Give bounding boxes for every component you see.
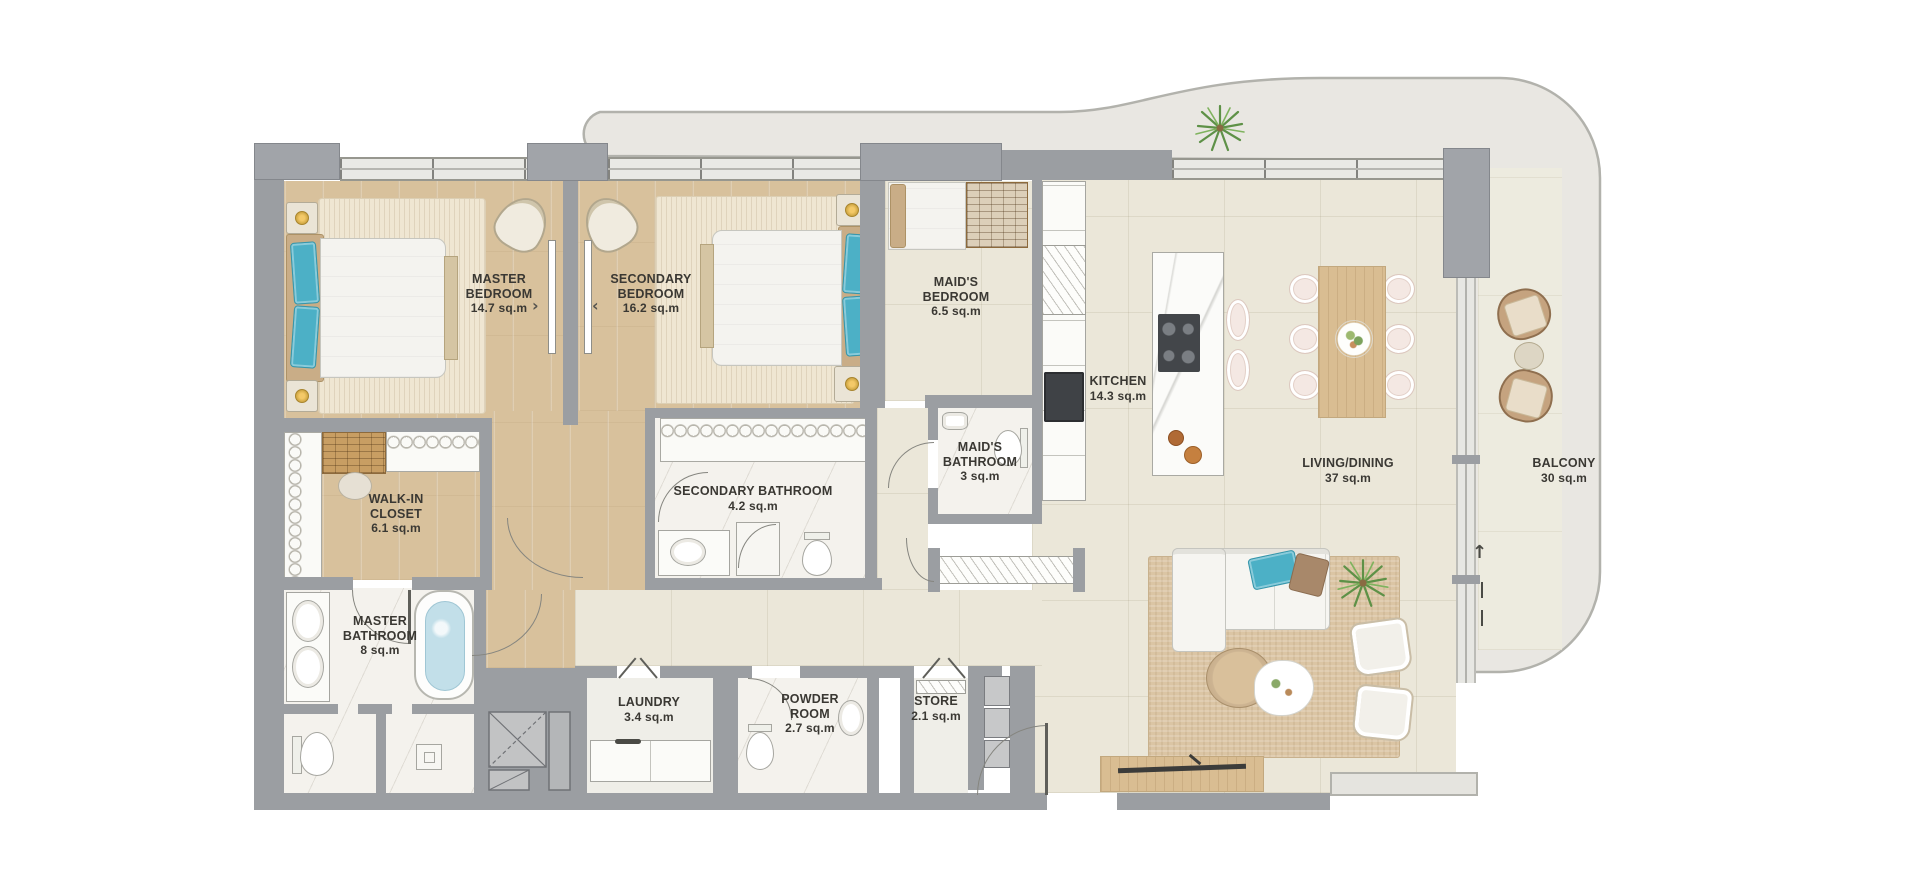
wall — [860, 180, 885, 408]
nightstand — [286, 202, 318, 234]
dining-chair — [1289, 324, 1321, 354]
column — [860, 143, 1002, 181]
sliding-door-arrow-icon: ‹ — [592, 298, 599, 314]
wall — [254, 793, 1047, 810]
bed-bench — [444, 256, 458, 360]
room-label-store: STORE 2.1 sq.m — [911, 694, 961, 723]
room-name: BALCONY — [1532, 456, 1595, 471]
room-area: 30 sq.m — [1532, 471, 1595, 486]
wall — [376, 714, 386, 793]
cooktop — [1158, 314, 1200, 372]
room-name: MASTER — [466, 272, 533, 287]
sliding-door-arrow-icon: › — [532, 298, 539, 314]
room-label-maids-bathroom: MAID'S BATHROOM 3 sq.m — [943, 440, 1017, 484]
column — [527, 143, 608, 181]
wall — [867, 666, 879, 793]
service-shaft — [984, 708, 1010, 738]
balcony-sill-band — [1330, 772, 1478, 796]
wall — [645, 408, 877, 418]
room-area: 4.2 sq.m — [674, 499, 833, 514]
lounge-armchair — [1351, 683, 1414, 743]
bar-stool — [1226, 299, 1250, 341]
room-name: BEDROOM — [923, 290, 990, 305]
room-label-master-bedroom: MASTER BEDROOM 14.7 sq.m — [466, 272, 533, 316]
service-shaft — [984, 676, 1010, 706]
room-name: CLOSET — [369, 507, 424, 522]
room-name: KITCHEN — [1090, 374, 1147, 389]
wall — [928, 408, 938, 440]
wall — [358, 704, 392, 714]
room-name: SECONDARY BATHROOM — [674, 484, 833, 499]
wall — [800, 666, 912, 678]
shower-drain — [416, 744, 442, 770]
kitchen-tall-cabinet — [1042, 245, 1086, 315]
sliding-door-track — [1456, 278, 1476, 683]
tv-console — [1100, 756, 1264, 792]
room-label-balcony: BALCONY 30 sq.m — [1532, 456, 1595, 485]
wall — [1032, 180, 1042, 524]
kitchen-back-counter — [938, 556, 1075, 584]
sink — [838, 700, 864, 736]
room-label-kitchen: KITCHEN 14.3 sq.m — [1090, 374, 1147, 403]
wardrobe-hangers — [284, 432, 322, 578]
wall — [1073, 548, 1085, 592]
room-name: MAID'S — [923, 275, 990, 290]
floor-plan: › ‹ — [0, 0, 1920, 892]
sliding-wardrobe-rail — [548, 240, 556, 354]
laundry-faucet — [615, 739, 641, 744]
toilet-tank — [804, 532, 830, 540]
room-name: BATHROOM — [343, 629, 417, 644]
wall — [254, 180, 284, 810]
lamp-icon — [295, 211, 309, 225]
room-label-secondary-bathroom: SECONDARY BATHROOM 4.2 sq.m — [674, 484, 833, 513]
room-name: POWDER — [781, 692, 838, 707]
dimension-dash — [1481, 582, 1483, 598]
secondary-bed — [712, 230, 842, 366]
washer-dryer — [590, 740, 711, 782]
room-name: BATHROOM — [943, 455, 1017, 470]
room-area: 6.5 sq.m — [923, 304, 990, 319]
wall — [928, 514, 1032, 524]
room-name: LIVING/DINING — [1302, 456, 1394, 471]
dimension-dash — [1481, 610, 1483, 626]
maids-bed-pillow — [890, 184, 906, 248]
room-label-powder-room: POWDER ROOM 2.7 sq.m — [781, 692, 838, 736]
sink — [942, 412, 968, 430]
shelf-unit — [322, 432, 386, 474]
sliding-wardrobe-rail — [584, 240, 592, 354]
pouf — [338, 472, 372, 500]
lamp-icon — [845, 377, 859, 391]
room-area: 8 sq.m — [343, 643, 417, 658]
wall — [900, 666, 914, 793]
bar-stool — [1226, 349, 1250, 391]
bed-bench — [700, 244, 714, 348]
room-name: LAUNDRY — [618, 695, 680, 710]
room-area: 3 sq.m — [943, 469, 1017, 484]
room-name: MASTER — [343, 614, 417, 629]
decor-bottle — [1184, 446, 1202, 464]
dining-chair — [1383, 324, 1415, 354]
window-band — [608, 157, 860, 181]
bathtub-water — [425, 601, 465, 691]
room-label-walk-in-closet: WALK-IN CLOSET 6.1 sq.m — [369, 492, 424, 536]
room-area: 6.1 sq.m — [369, 521, 424, 536]
track-mullion — [1452, 455, 1480, 464]
wall — [575, 666, 587, 793]
oven-appliance — [1044, 372, 1084, 422]
room-area: 16.2 sq.m — [610, 301, 691, 316]
sink — [670, 538, 706, 566]
pillow — [290, 305, 320, 369]
pillow — [290, 241, 320, 305]
chair-cushion — [1503, 294, 1548, 337]
floor-entry-corridor — [575, 590, 1042, 666]
sink — [292, 646, 324, 688]
lamp-icon — [295, 389, 309, 403]
dining-chair — [1383, 274, 1415, 304]
room-name: BEDROOM — [466, 287, 533, 302]
room-area: 2.1 sq.m — [911, 709, 961, 724]
nightstand — [286, 380, 318, 412]
sofa-chaise — [1172, 548, 1226, 652]
window-band — [1172, 158, 1443, 180]
entrance-door-leaf — [1045, 723, 1048, 795]
chair-cushion — [1505, 377, 1549, 419]
track-mullion — [1452, 575, 1480, 584]
room-name: SECONDARY — [610, 272, 691, 287]
wall — [660, 666, 752, 678]
room-name: MAID'S — [943, 440, 1017, 455]
table-centerpiece — [1335, 320, 1373, 358]
room-area: 14.3 sq.m — [1090, 389, 1147, 404]
toilet — [802, 540, 832, 576]
room-label-maids-bedroom: MAID'S BEDROOM 6.5 sq.m — [923, 275, 990, 319]
column — [1443, 148, 1490, 278]
wall — [713, 666, 738, 793]
room-area: 14.7 sq.m — [466, 301, 533, 316]
balcony-direction-arrow-icon: ↑ — [1472, 544, 1487, 562]
store-shelf — [916, 680, 966, 694]
wardrobe — [966, 182, 1028, 248]
service-shaft — [486, 668, 575, 793]
wall — [563, 180, 578, 425]
wall — [925, 395, 1032, 408]
dining-chair — [1383, 370, 1415, 400]
wall — [645, 408, 655, 590]
wardrobe-hangers — [660, 418, 870, 462]
room-label-master-bathroom: MASTER BATHROOM 8 sq.m — [343, 614, 417, 658]
room-label-living-dining: LIVING/DINING 37 sq.m — [1302, 456, 1394, 485]
wall — [1117, 793, 1330, 810]
wall — [254, 418, 492, 432]
room-label-laundry: LAUNDRY 3.4 sq.m — [618, 695, 680, 724]
master-bed — [320, 238, 446, 378]
palm-plant-icon — [1334, 554, 1392, 612]
kitchen-counter — [1042, 181, 1086, 501]
room-name: ROOM — [781, 707, 838, 722]
wall — [412, 704, 476, 714]
room-name: WALK-IN — [369, 492, 424, 507]
wall — [480, 430, 492, 580]
room-area: 3.4 sq.m — [618, 710, 680, 725]
palm-plant-icon — [1192, 100, 1248, 156]
room-name: STORE — [911, 694, 961, 709]
room-label-secondary-bedroom: SECONDARY BEDROOM 16.2 sq.m — [610, 272, 691, 316]
room-name: BEDROOM — [610, 287, 691, 302]
lounge-armchair — [1349, 616, 1414, 678]
wall — [1002, 150, 1172, 180]
drain — [424, 752, 435, 763]
toilet-tank — [748, 724, 772, 732]
wall — [865, 408, 877, 590]
decor-bottle — [1168, 430, 1184, 446]
lamp-icon — [845, 203, 859, 217]
dining-chair — [1289, 274, 1321, 304]
wall — [284, 704, 338, 714]
wardrobe-hangers — [386, 430, 480, 472]
room-area: 2.7 sq.m — [781, 721, 838, 736]
balcony-table — [1514, 342, 1544, 370]
dining-chair — [1289, 370, 1321, 400]
sink — [292, 600, 324, 642]
column — [254, 143, 340, 180]
room-area: 37 sq.m — [1302, 471, 1394, 486]
toilet — [300, 732, 334, 776]
toilet — [746, 732, 774, 770]
wall — [254, 577, 353, 590]
window-band — [340, 157, 527, 181]
wall — [645, 578, 882, 590]
bathtub — [414, 590, 474, 700]
